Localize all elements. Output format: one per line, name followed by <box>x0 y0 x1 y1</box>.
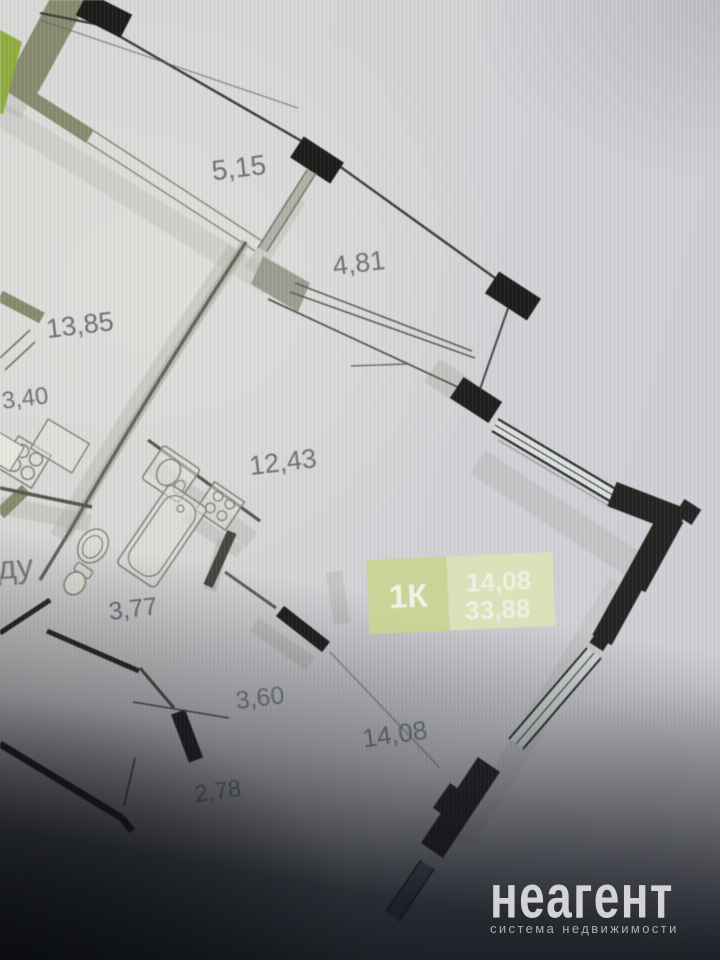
svg-text:33,88: 33,88 <box>465 593 531 626</box>
svg-text:1К: 1К <box>388 576 429 615</box>
